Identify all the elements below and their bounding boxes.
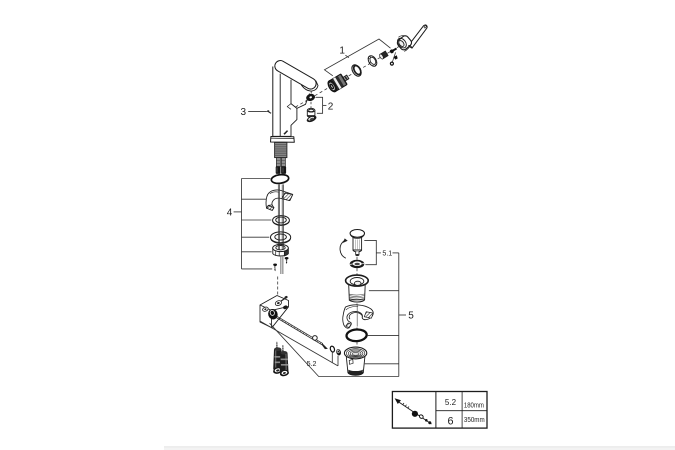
svg-text:4: 4 <box>227 208 233 219</box>
svg-text:5.1: 5.1 <box>382 249 392 257</box>
svg-text:2: 2 <box>328 102 334 113</box>
svg-text:5: 5 <box>408 311 414 322</box>
svg-text:5.2: 5.2 <box>445 398 457 407</box>
svg-text:5.2: 5.2 <box>307 360 317 368</box>
svg-text:3: 3 <box>241 107 247 118</box>
svg-text:180mm: 180mm <box>464 400 484 409</box>
svg-text:6: 6 <box>448 416 454 428</box>
svg-text:1: 1 <box>339 45 345 56</box>
svg-text:350mm: 350mm <box>464 415 485 424</box>
